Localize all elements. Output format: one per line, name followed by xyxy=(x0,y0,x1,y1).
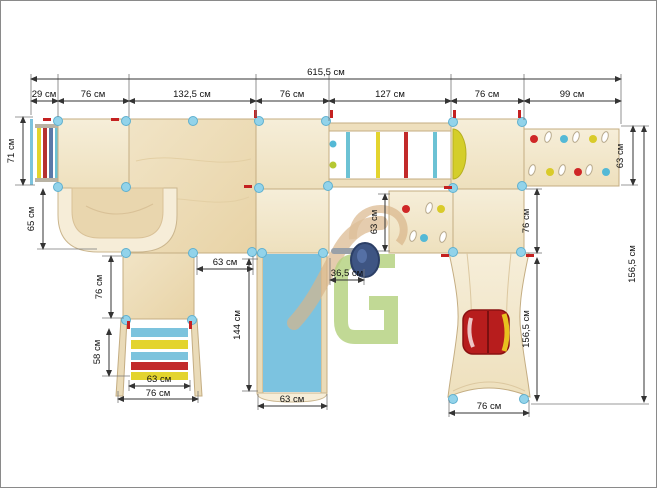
structure-layer xyxy=(30,119,619,402)
dim-platform-opening: 63 см xyxy=(213,257,238,268)
dim-ladder-width-inner: 63 см xyxy=(147,374,172,385)
tower-b-lower xyxy=(256,189,329,253)
bridge-rail-bottom xyxy=(329,179,451,187)
tunnel-arch xyxy=(58,188,177,252)
playground-plan-drawing: 615,5 см 29 см 76 см 132,5 см 76 см 127 … xyxy=(1,1,656,487)
dim-ladder-width-outer: 76 см xyxy=(146,388,171,399)
bridge-rail-top xyxy=(329,123,451,131)
dim-tunnel-height: 65 см xyxy=(26,207,37,232)
dim-tube-length: 156,5 см xyxy=(521,310,532,348)
dim-seg-3: 132,5 см xyxy=(173,89,211,100)
tower-c-lower xyxy=(453,189,524,253)
dim-left-ladder-height: 71 см xyxy=(6,139,17,164)
dim-wheel-offset: 36,5 см xyxy=(331,268,363,279)
ladder-rungs xyxy=(131,328,188,380)
dim-seg-2: 76 см xyxy=(81,89,106,100)
dim-right-panel-height: 63 см xyxy=(615,144,626,169)
dim-seg-1: 29 см xyxy=(32,89,57,100)
tower-b-upper xyxy=(256,119,329,189)
lower-tower-left xyxy=(123,253,194,319)
knob-cyan xyxy=(330,141,337,148)
climb-panel-right xyxy=(524,129,619,186)
technical-drawing-canvas: 615,5 см 29 см 76 см 132,5 см 76 см 127 … xyxy=(0,0,657,488)
dim-total-width: 615,5 см xyxy=(307,67,345,78)
tower-a-platform xyxy=(58,119,129,189)
ladder-rail-left xyxy=(116,319,127,396)
curved-tube-slide xyxy=(448,253,530,397)
ladder-rail-cyan xyxy=(30,119,33,185)
dim-slide-width: 63 см xyxy=(280,394,305,405)
dim-seg-4: 76 см xyxy=(280,89,305,100)
dim-slide-length: 144 см xyxy=(232,310,243,340)
dim-lower-tower-height: 76 см xyxy=(94,275,105,300)
tube-seat xyxy=(463,310,509,354)
dim-seg-7: 99 см xyxy=(560,89,585,100)
dim-tube-width: 76 см xyxy=(477,401,502,412)
dim-mid-panel-height: 63 см xyxy=(369,210,380,235)
knob-yellow xyxy=(330,162,337,169)
ladder-rail-right xyxy=(191,319,202,396)
dim-seg-5: 127 см xyxy=(375,89,405,100)
slide-rail-left xyxy=(257,253,263,393)
dim-right-tower-height: 76 см xyxy=(521,209,532,234)
dim-seg-6: 76 см xyxy=(475,89,500,100)
dim-ladder-length: 58 см xyxy=(92,340,103,365)
bridge-ladder xyxy=(329,123,451,187)
dim-total-depth: 156,5 см xyxy=(627,245,638,283)
